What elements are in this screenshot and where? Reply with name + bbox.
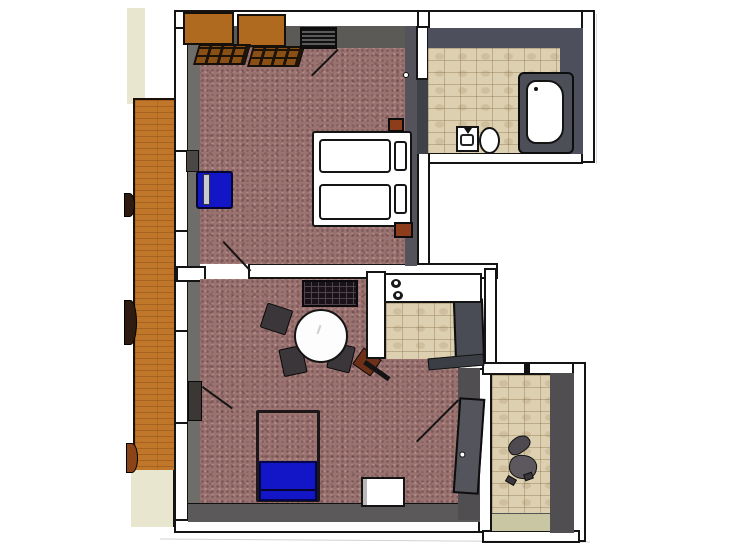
bed-mattress-2 — [319, 184, 391, 220]
bed-pillow-1 — [394, 141, 407, 171]
wardrobe-front-1 — [193, 44, 251, 65]
armchair-armrest — [203, 174, 210, 205]
cooktop-burner-icon — [393, 291, 403, 300]
wardrobe-top-2 — [237, 14, 286, 47]
wall-top-bathroom — [417, 10, 595, 30]
bathroom-wall-shadow — [417, 78, 428, 154]
sofa-bed-blue-mattress — [259, 461, 317, 501]
kitchen-floor — [386, 303, 458, 359]
bathtub-basin — [526, 80, 564, 144]
floorplan-canvas — [0, 0, 737, 553]
balcony-paving-top — [127, 8, 145, 104]
bed-mattress-1 — [319, 139, 391, 173]
sink-basin — [460, 134, 474, 146]
faucet-icon — [464, 128, 472, 134]
nightstand-1 — [388, 118, 404, 132]
door-handle-icon — [459, 451, 465, 457]
cooktop-burner-icon — [391, 279, 401, 288]
mattress-seam — [261, 489, 315, 491]
balcony-wood-floor — [133, 98, 177, 472]
bathtub — [518, 72, 574, 154]
table-scratch — [317, 325, 322, 334]
bathtub-drain-icon — [534, 87, 538, 91]
stool-edge — [363, 479, 367, 505]
sink — [456, 126, 479, 152]
hall-doormat — [492, 513, 550, 531]
radiator-icon — [300, 27, 337, 49]
blue-armchair — [196, 171, 233, 209]
kitchen-side-panel — [366, 271, 386, 359]
window-tick — [176, 230, 187, 232]
wardrobe-top-1 — [183, 12, 234, 45]
round-dining-table — [294, 309, 348, 363]
wardrobe-front-2 — [247, 46, 305, 67]
window-tick — [176, 330, 187, 332]
sketch-line — [596, 14, 597, 164]
wall-kitchen-right — [484, 268, 497, 368]
balcony-door — [188, 381, 202, 421]
living-wall-face-bottom — [188, 503, 480, 522]
kitchen-counter — [384, 273, 482, 303]
white-stool — [361, 477, 405, 507]
hall-door-jamb — [524, 364, 530, 375]
wall-right-hall — [572, 362, 586, 542]
bathroom-wall-face-top — [428, 28, 568, 48]
nightstand-2 — [394, 222, 413, 238]
bed-pillow-2 — [394, 184, 407, 214]
window-sill — [186, 150, 199, 172]
planter-icon — [124, 300, 137, 345]
planter-icon — [124, 193, 135, 217]
toilet — [479, 127, 500, 154]
grid-shelf — [302, 280, 358, 307]
door-handle-icon — [403, 72, 409, 78]
balcony-paving-bottom — [131, 470, 175, 527]
planter-icon — [126, 443, 138, 473]
hall-wall-face-right — [550, 373, 574, 533]
window-tick — [176, 422, 187, 424]
wall-right-bathroom — [581, 10, 595, 163]
